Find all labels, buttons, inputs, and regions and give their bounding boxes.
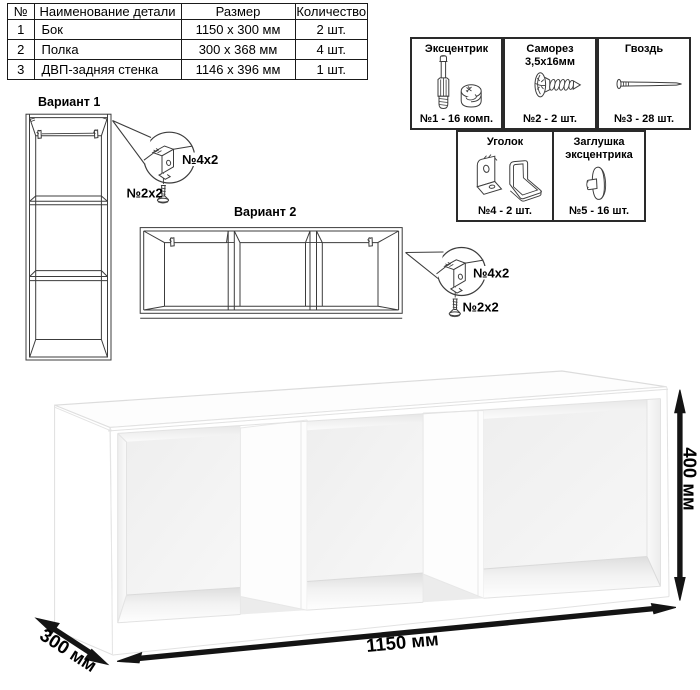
svg-text:400 мм: 400 мм xyxy=(680,447,700,510)
svg-text:1150 мм: 1150 мм xyxy=(365,628,439,656)
